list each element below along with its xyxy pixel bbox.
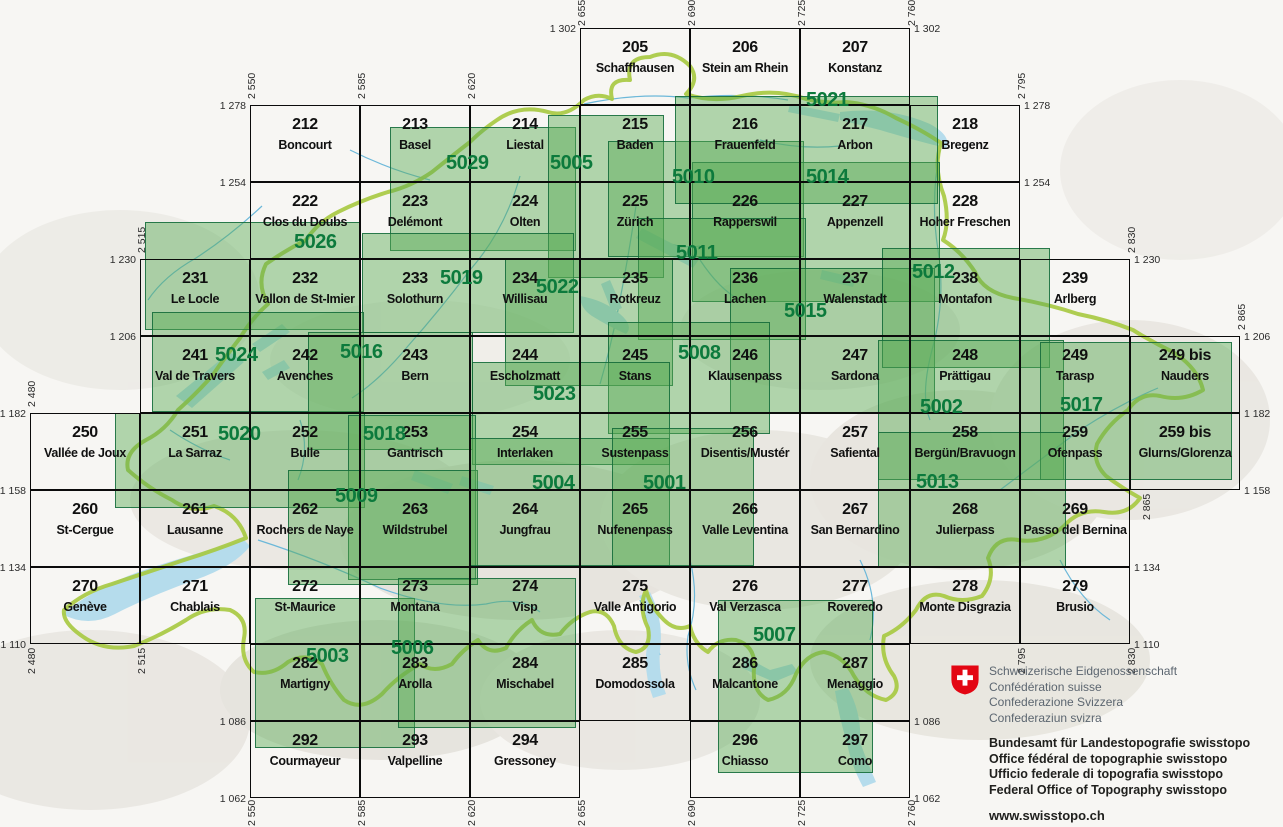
composite-number-5016: 5016 — [340, 342, 383, 362]
composite-number-5012: 5012 — [912, 262, 955, 282]
swisstopo-sheet-index-map: 205Schaffhausen206Stein am Rhein207Konst… — [0, 0, 1283, 827]
composite-number-5009: 5009 — [335, 486, 378, 506]
composite-number-5024: 5024 — [215, 345, 258, 365]
composite-number-5005: 5005 — [550, 153, 593, 173]
office-line-de: Bundesamt für Landestopografie swisstopo — [989, 736, 1280, 752]
confederation-line-rm: Confederaziun svizra — [989, 711, 1177, 727]
composite-number-5020: 5020 — [218, 424, 261, 444]
composite-number-5014: 5014 — [806, 167, 849, 187]
composite-number-5018: 5018 — [363, 424, 406, 444]
swisstopo-website-link[interactable]: www.swisstopo.ch — [989, 808, 1280, 823]
swisstopo-logo-block: Schweizerische Eidgenossenschaft Confédé… — [950, 664, 1280, 823]
composite-number-5010: 5010 — [672, 167, 715, 187]
composite-number-5026: 5026 — [294, 232, 337, 252]
office-line-en: Federal Office of Topography swisstopo — [989, 783, 1280, 799]
composite-number-5002: 5002 — [920, 397, 963, 417]
composite-number-5011: 5011 — [676, 243, 717, 263]
confederation-line-it: Confederazione Svizzera — [989, 695, 1177, 711]
confederation-text: Schweizerische Eidgenossenschaft Confédé… — [989, 664, 1177, 726]
composite-number-5013: 5013 — [916, 472, 959, 492]
composite-number-5006: 5006 — [391, 638, 434, 658]
composite-number-5019: 5019 — [440, 268, 483, 288]
confederation-line-de: Schweizerische Eidgenossenschaft — [989, 664, 1177, 680]
composite-number-5001: 5001 — [643, 473, 686, 493]
composite-number-5015: 5015 — [784, 301, 827, 321]
composite-number-5029: 5029 — [446, 153, 489, 173]
composite-number-5017: 5017 — [1060, 395, 1103, 415]
swiss-coat-of-arms-icon — [950, 664, 980, 696]
composite-number-5022: 5022 — [536, 277, 579, 297]
composite-number-5003: 5003 — [306, 646, 349, 666]
office-line-it: Ufficio federale di topografia swisstopo — [989, 767, 1280, 783]
office-text: Bundesamt für Landestopografie swisstopo… — [989, 736, 1280, 798]
composite-number-5023: 5023 — [533, 384, 576, 404]
composite-number-5004: 5004 — [532, 473, 575, 493]
composite-number-5008: 5008 — [678, 343, 721, 363]
confederation-line-fr: Confédération suisse — [989, 680, 1177, 696]
composite-number-5021: 5021 — [806, 90, 849, 110]
office-line-fr: Office fédéral de topographie swisstopo — [989, 752, 1280, 768]
composite-number-5007: 5007 — [753, 625, 796, 645]
